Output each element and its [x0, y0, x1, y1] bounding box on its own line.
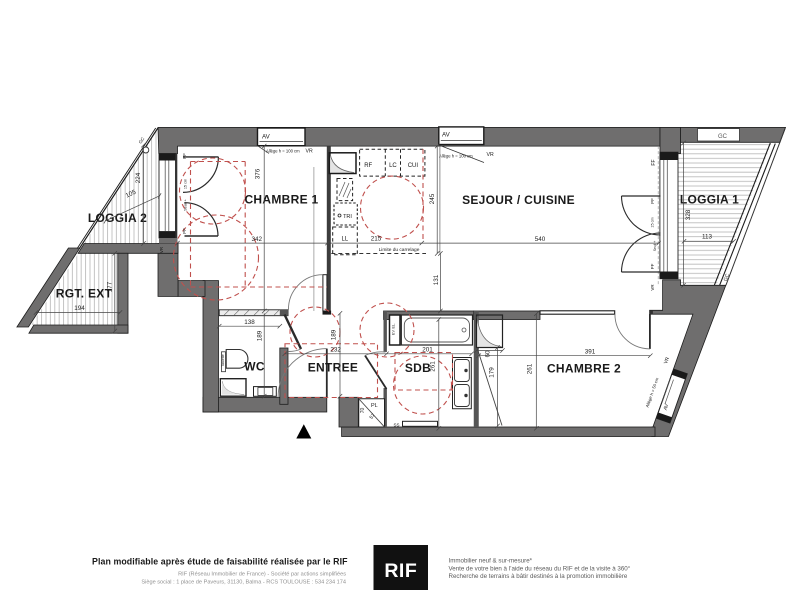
svg-text:SS: SS [394, 422, 400, 427]
svg-text:138: 138 [244, 319, 255, 326]
svg-text:189: 189 [331, 329, 338, 340]
svg-text:RIF (Réseau Immobilier de Fran: RIF (Réseau Immobilier de France) - Soci… [178, 572, 346, 578]
svg-text:PF: PF [182, 228, 187, 234]
svg-text:224: 224 [135, 172, 142, 183]
svg-text:Seuil +: Seuil + [183, 198, 187, 210]
svg-text:Vente de votre bien à l’aide d: Vente de votre bien à l’aide du réseau d… [449, 565, 631, 572]
svg-text:261: 261 [527, 363, 534, 374]
svg-text:WC: WC [244, 360, 265, 374]
svg-text:15 cm: 15 cm [651, 217, 655, 227]
svg-text:Seuil +: Seuil + [653, 241, 657, 251]
svg-text:PL: PL [371, 403, 378, 409]
svg-text:VR: VR [663, 356, 671, 365]
svg-text:189: 189 [257, 330, 264, 341]
svg-text:232: 232 [330, 347, 341, 354]
svg-text:Limite du carrelage: Limite du carrelage [379, 247, 420, 253]
svg-text:15 cm: 15 cm [183, 179, 187, 189]
svg-text:TRI: TRI [343, 214, 352, 220]
svg-text:AV: AV [442, 132, 451, 139]
svg-text:177: 177 [107, 281, 114, 292]
svg-text:376: 376 [255, 168, 262, 179]
svg-text:LOGGIA 2: LOGGIA 2 [88, 211, 147, 225]
svg-text:VR: VR [487, 152, 494, 158]
svg-text:Allège h = 50 cm: Allège h = 50 cm [645, 376, 660, 408]
svg-text:PF: PF [650, 198, 655, 204]
svg-text:245: 245 [429, 193, 436, 204]
svg-text:391: 391 [585, 349, 596, 356]
svg-text:Recherche de terrains à bâtir: Recherche de terrains à bâtir destinés à… [449, 573, 628, 580]
svg-text:RGT. EXT: RGT. EXT [56, 287, 113, 301]
svg-text:PF: PF [182, 153, 187, 159]
svg-text:342: 342 [252, 236, 263, 243]
svg-text:540: 540 [535, 236, 546, 243]
svg-text:LL: LL [341, 237, 348, 243]
svg-text:261: 261 [430, 361, 437, 372]
svg-text:131: 131 [433, 274, 440, 285]
svg-text:215: 215 [371, 235, 382, 242]
svg-text:GC: GC [138, 136, 146, 145]
svg-text:ENTREE: ENTREE [308, 361, 358, 375]
svg-text:Allège h = 100 cm: Allège h = 100 cm [266, 148, 300, 153]
svg-text:Immobilier neuf & sur-mesure*: Immobilier neuf & sur-mesure* [449, 558, 533, 565]
svg-text:Plan modifiable après étude de: Plan modifiable après étude de faisabili… [92, 557, 348, 567]
svg-text:SEJOUR / CUISINE: SEJOUR / CUISINE [462, 193, 575, 207]
svg-text:201: 201 [422, 347, 433, 354]
svg-text:FF: FF [651, 159, 657, 165]
svg-text:VR: VR [650, 284, 655, 291]
svg-text:LC: LC [389, 163, 397, 169]
svg-text:RIF: RIF [384, 560, 417, 582]
svg-text:AV: AV [262, 134, 271, 141]
svg-text:GC: GC [718, 134, 728, 140]
svg-text:SDB: SDB [405, 361, 431, 375]
svg-text:CHAMBRE 2: CHAMBRE 2 [547, 362, 621, 376]
svg-text:VR: VR [306, 149, 313, 155]
svg-text:RF: RF [364, 163, 372, 169]
svg-text:60: 60 [485, 350, 492, 358]
svg-text:113: 113 [702, 234, 713, 241]
svg-text:CHAMBRE 1: CHAMBRE 1 [244, 193, 318, 207]
svg-text:PF: PF [650, 263, 655, 269]
svg-text:CUI: CUI [408, 163, 419, 169]
svg-text:70: 70 [360, 408, 366, 414]
svg-text:VR: VR [159, 246, 164, 253]
svg-text:194: 194 [74, 305, 85, 312]
svg-text:Allège h = 100 cm: Allège h = 100 cm [439, 154, 473, 159]
svg-text:LOGGIA 1: LOGGIA 1 [680, 193, 739, 207]
svg-text:EV. EL.: EV. EL. [392, 323, 396, 335]
svg-text:179: 179 [489, 367, 496, 378]
svg-text:328: 328 [685, 209, 692, 220]
svg-text:Siège social : 1 place de Pave: Siège social : 1 place de Paveurs, 31130… [141, 579, 346, 585]
svg-text:Tablette: Tablette [221, 354, 225, 367]
